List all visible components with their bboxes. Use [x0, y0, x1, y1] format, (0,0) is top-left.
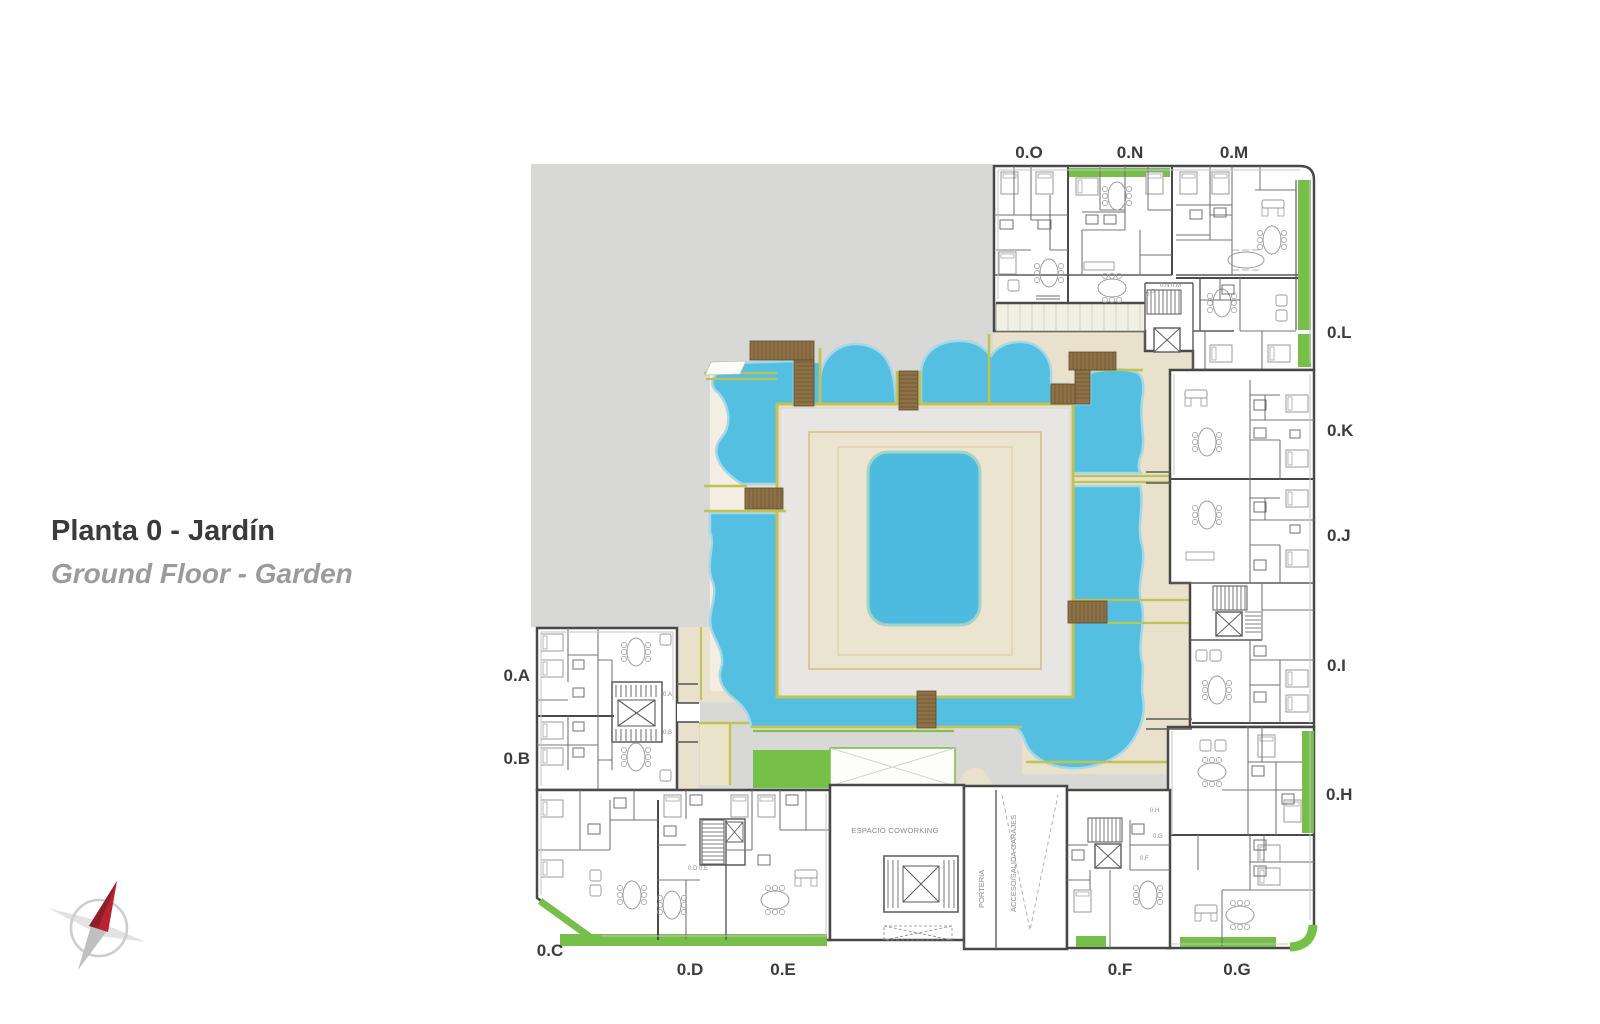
svg-text:0.B: 0.B	[663, 730, 672, 736]
svg-text:0.D 0.E: 0.D 0.E	[688, 866, 708, 872]
svg-text:0.C: 0.C	[537, 941, 563, 960]
svg-text:0.H: 0.H	[1326, 785, 1352, 804]
svg-text:0.G: 0.G	[1153, 834, 1163, 840]
svg-text:0.L: 0.L	[1327, 323, 1352, 342]
svg-text:0.A: 0.A	[663, 692, 672, 698]
svg-text:ACCESO/SALIDA GARAJES: ACCESO/SALIDA GARAJES	[1009, 815, 1018, 912]
svg-text:0.B: 0.B	[504, 749, 530, 768]
svg-text:0.N: 0.N	[1117, 143, 1143, 162]
svg-text:0.I: 0.I	[1327, 656, 1346, 675]
svg-text:0.G: 0.G	[1223, 960, 1250, 979]
svg-text:0.F: 0.F	[1140, 856, 1149, 862]
svg-text:Ground Floor - Garden: Ground Floor - Garden	[51, 558, 353, 589]
svg-text:0.N 0.M: 0.N 0.M	[1160, 283, 1181, 289]
svg-text:0.F: 0.F	[1108, 960, 1133, 979]
svg-text:0.A: 0.A	[504, 666, 530, 685]
svg-text:0.J: 0.J	[1327, 526, 1351, 545]
svg-text:0.M: 0.M	[1220, 143, 1248, 162]
svg-text:0.E: 0.E	[770, 960, 796, 979]
svg-text:Planta 0 - Jardín: Planta 0 - Jardín	[51, 515, 275, 547]
svg-text:0.D: 0.D	[677, 960, 703, 979]
svg-text:0.K: 0.K	[1327, 421, 1354, 440]
svg-text:0.O: 0.O	[1015, 143, 1042, 162]
svg-text:ESPACIO COWORKING: ESPACIO COWORKING	[851, 826, 938, 835]
svg-text:0.H: 0.H	[1150, 808, 1159, 814]
svg-text:PORTERIA: PORTERIA	[977, 870, 986, 908]
